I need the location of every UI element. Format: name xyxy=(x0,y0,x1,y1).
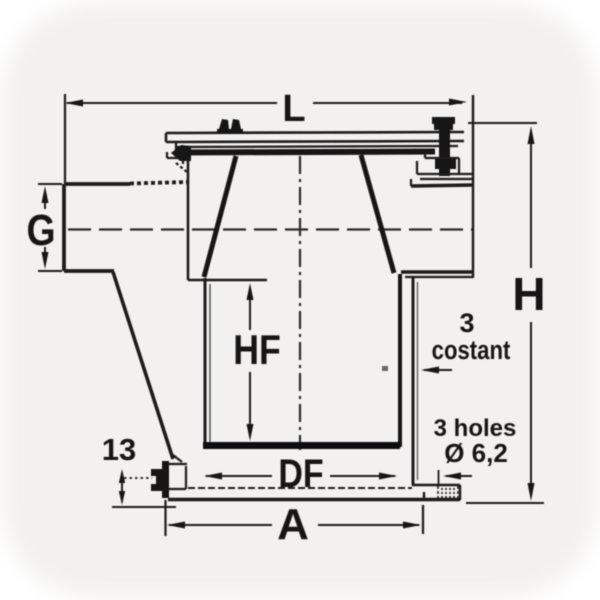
svg-text:HF: HF xyxy=(233,327,281,373)
svg-text:H: H xyxy=(512,268,545,320)
svg-text:G: G xyxy=(26,205,55,255)
svg-text:3: 3 xyxy=(459,308,474,338)
svg-text:costant: costant xyxy=(432,336,511,366)
svg-text:Ø 6,2: Ø 6,2 xyxy=(444,438,508,468)
svg-text:13: 13 xyxy=(102,432,136,467)
svg-text:A: A xyxy=(277,500,309,549)
svg-text:L: L xyxy=(282,88,305,130)
